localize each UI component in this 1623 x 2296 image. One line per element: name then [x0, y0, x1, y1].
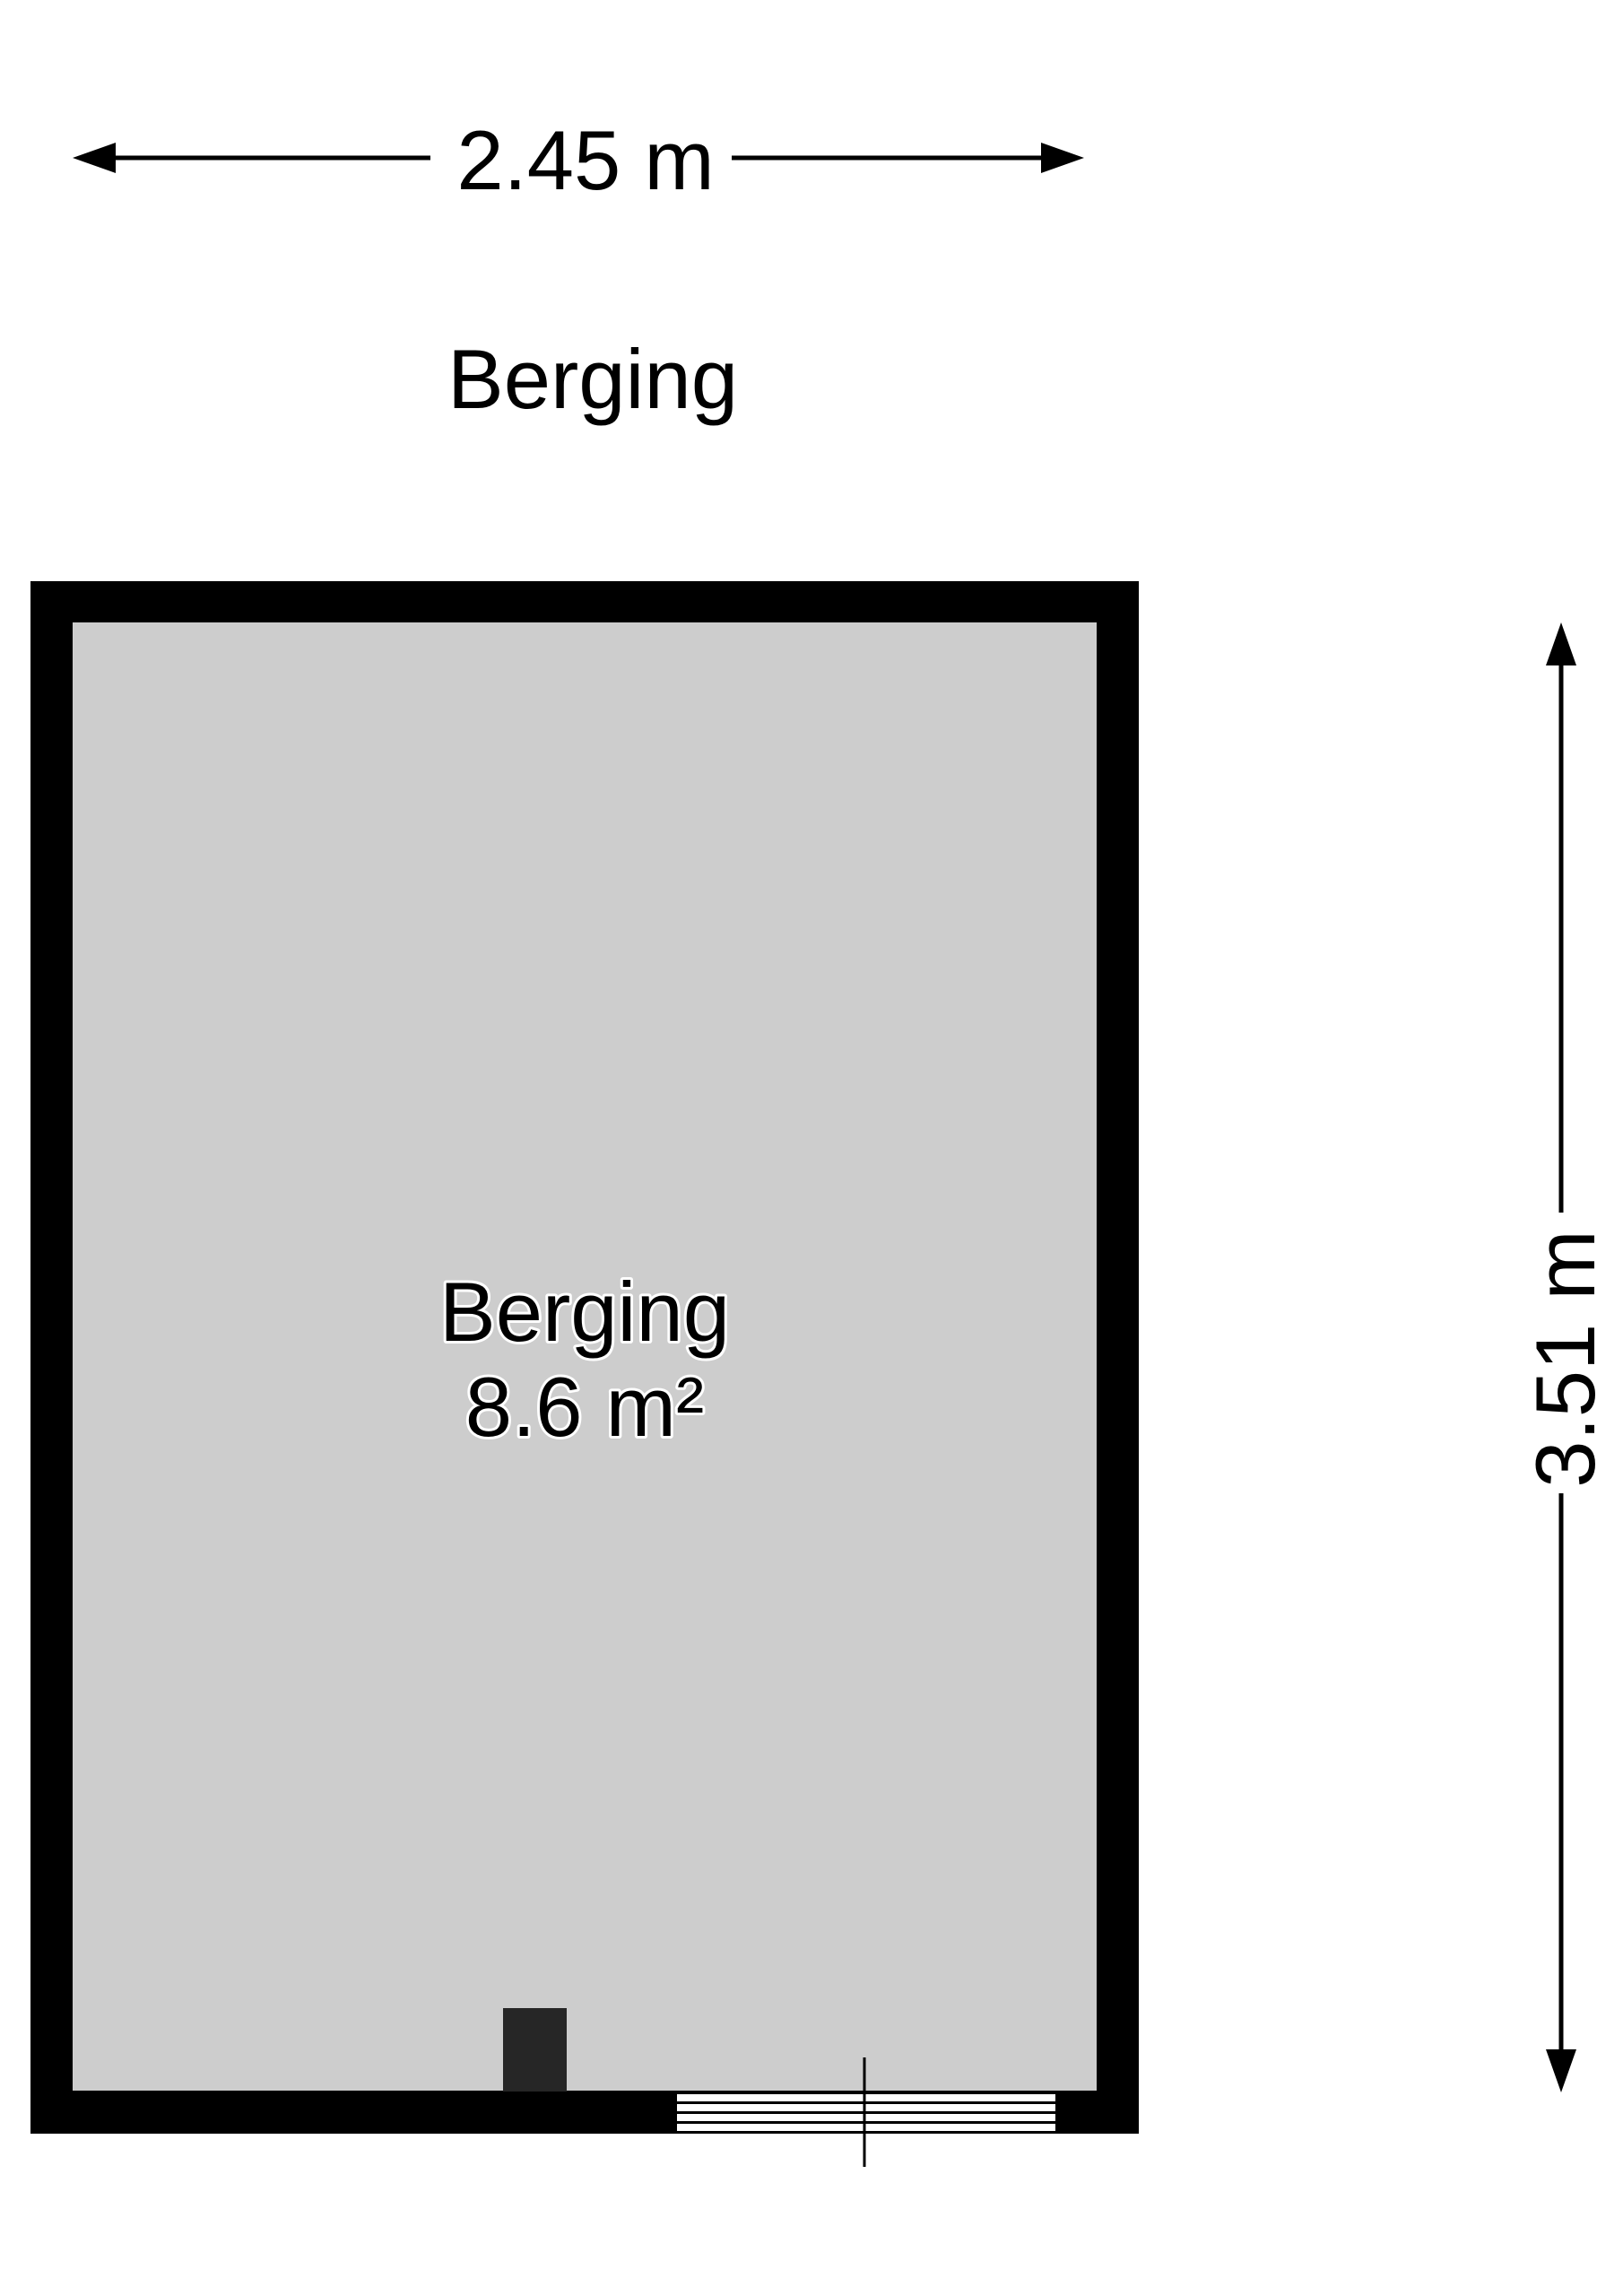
- svg-text:8.6 m²: 8.6 m²: [465, 1360, 704, 1454]
- svg-text:Berging: Berging: [439, 1265, 730, 1359]
- svg-text:2.45 m: 2.45 m: [456, 113, 714, 207]
- svg-text:3.51 m: 3.51 m: [1518, 1230, 1612, 1487]
- svg-text:Berging: Berging: [447, 332, 738, 426]
